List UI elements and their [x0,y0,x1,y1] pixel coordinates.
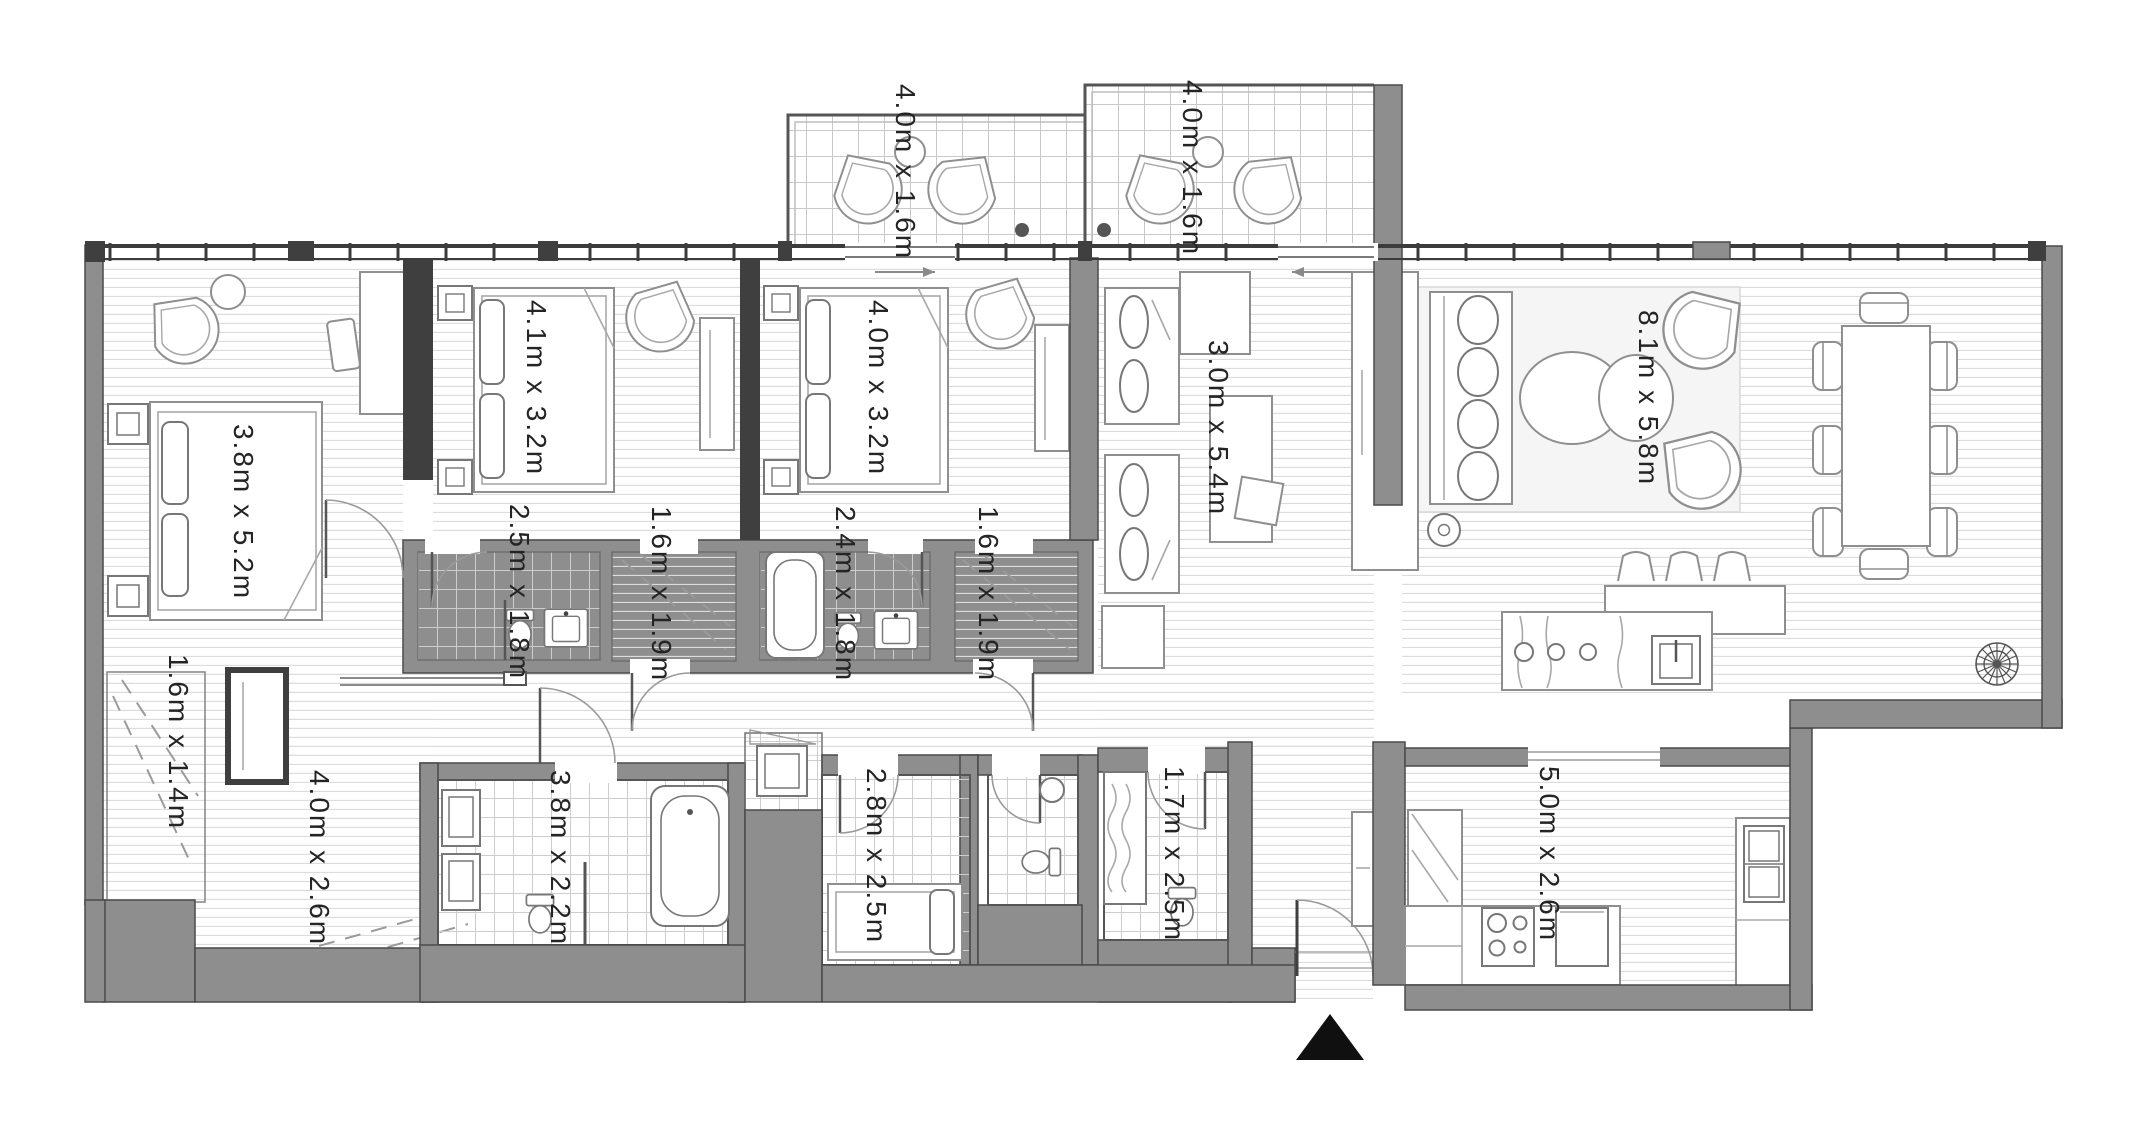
dim-label-living-dining: 8.1m x 5.8m [1632,310,1664,486]
floor-plan: 4.0m x 1.6m 4.0m x 1.6m 3.8m x 5.2m 4.1m… [0,0,2140,1146]
decorative-rosette-icon [1976,643,2018,685]
ceiling-dot [1015,223,1029,237]
dim-label-balcony-left: 4.0m x 1.6m [889,84,921,260]
dim-label-bedroom-left: 3.8m x 5.2m [227,424,259,600]
dim-label-entry-hallway: 4.0m x 2.6m [303,770,335,946]
dim-label-bathroom-middle-left: 2.5m x 1.8m [503,504,535,680]
dim-label-master-bathroom: 3.8m x 2.2m [544,770,576,946]
dim-label-family-room: 3.0m x 5.4m [1202,340,1234,516]
laundry-basin-niche [745,730,822,812]
dim-label-bedroom-right: 4.0m x 3.2m [862,300,894,476]
north-arrow-icon [1296,1014,1364,1060]
dim-label-closet-middle-right: 1.6m x 1.9m [972,506,1004,682]
floor-plan-drawing [0,0,2140,1146]
maid-room-area [822,753,978,965]
dim-label-utility-room: 1.7m x 2.5m [1158,766,1190,942]
maid-wc-area [978,753,1098,965]
dim-label-kitchen: 5.0m x 2.6m [1533,766,1565,942]
dim-label-closet-middle-left: 1.6m x 1.9m [645,506,677,682]
dim-label-maid-room: 2.8m x 2.5m [860,768,892,944]
dim-label-bathroom-middle-right: 2.4m x 1.8m [829,506,861,682]
ceiling-dot [1097,223,1111,237]
dim-label-entry-closet: 1.6m x 1.4m [162,654,194,830]
dim-label-balcony-right: 4.0m x 1.6m [1176,80,1208,256]
dim-label-bedroom-middle: 4.1m x 3.2m [520,300,552,476]
